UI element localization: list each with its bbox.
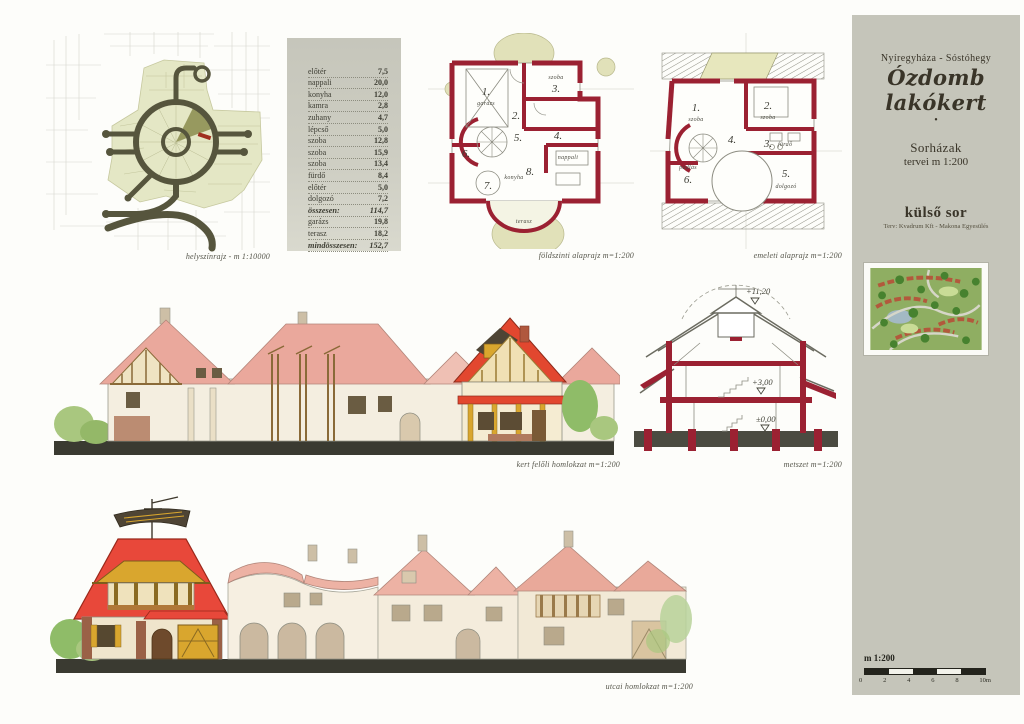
section-drawing: +11,20 +3,00 ±0,00 bbox=[630, 281, 842, 460]
table-row: kamra2,8 bbox=[308, 101, 388, 113]
table-row: terasz18,2 bbox=[308, 228, 388, 240]
row-value: 2,8 bbox=[378, 101, 388, 111]
garden-elevation-caption: kert felőli homlokzat m=1:200 bbox=[48, 460, 620, 469]
row-value: 20,0 bbox=[374, 78, 388, 88]
pale-house-3 bbox=[374, 549, 522, 659]
table-row-subtotal: összesen:114,7 bbox=[308, 205, 388, 217]
row-label: összesen: bbox=[308, 206, 340, 216]
row-label: dolgozó bbox=[308, 194, 334, 204]
row-value: 18,2 bbox=[374, 229, 388, 239]
void-arc bbox=[712, 151, 772, 211]
room-name: szoba bbox=[548, 75, 563, 81]
room-name: dolgozó bbox=[775, 184, 796, 190]
section-caption: metszet m=1:200 bbox=[630, 460, 842, 469]
room-number: 7. bbox=[484, 180, 492, 192]
scale-tick: 10m bbox=[979, 677, 991, 684]
room-number: 6. bbox=[462, 148, 470, 160]
level-label: ±0,00 bbox=[756, 414, 776, 424]
room-number: 3. bbox=[763, 138, 772, 150]
row-label: zuhany bbox=[308, 113, 331, 123]
row-label: fürdő bbox=[308, 171, 325, 181]
row-value: 5,0 bbox=[378, 183, 388, 193]
scale-tick: 2 bbox=[883, 677, 886, 684]
table-row: zuhany4,7 bbox=[308, 112, 388, 124]
room-name: szoba bbox=[760, 115, 775, 121]
scale-tick: 4 bbox=[907, 677, 910, 684]
room-number: 1. bbox=[482, 86, 490, 98]
row-label: szoba bbox=[308, 148, 326, 158]
ground-floor-plan: 1. garázs 2. szoba 3. 4. 5. 6. 7. konyha… bbox=[428, 33, 634, 249]
terrace-label: terasz bbox=[516, 219, 532, 225]
pale-house-2 bbox=[228, 562, 378, 659]
row-type-label: külső sor bbox=[852, 205, 1020, 222]
room-number: 4. bbox=[554, 130, 562, 142]
scale-segment bbox=[913, 669, 937, 674]
shutter-right bbox=[115, 625, 121, 647]
row-label: nappali bbox=[308, 78, 332, 88]
scale-segment bbox=[865, 669, 889, 674]
site-plan-caption: helyszínrajz - m 1:10000 bbox=[46, 252, 270, 261]
row-label: előtér bbox=[308, 67, 326, 77]
upper-floor-drawing: 1. szoba 2. szoba 3. fürdő 4. 5. dolgozó… bbox=[650, 33, 842, 249]
row-value: 7,5 bbox=[378, 67, 388, 77]
room-number: 2. bbox=[512, 110, 520, 122]
ground-strip bbox=[56, 659, 686, 673]
street-elevation-drawing bbox=[48, 487, 693, 678]
level-label: +3,00 bbox=[752, 377, 773, 387]
scale-tick: 8 bbox=[955, 677, 958, 684]
left-bushes bbox=[54, 406, 112, 444]
scale-segment bbox=[961, 669, 985, 674]
row-label: konyha bbox=[308, 90, 332, 100]
table-row: szoba12,8 bbox=[308, 136, 388, 148]
roof-plane bbox=[700, 53, 778, 79]
section-svg: +11,20 +3,00 ±0,00 bbox=[630, 281, 842, 460]
chimneys bbox=[308, 531, 573, 563]
row-value: 114,7 bbox=[370, 206, 388, 216]
project-title: Ózdomb lakókert bbox=[852, 65, 1020, 115]
balcony-rail bbox=[108, 605, 194, 610]
row-value: 13,4 bbox=[374, 159, 388, 169]
table-row: szoba15,9 bbox=[308, 147, 388, 159]
row-label: lépcső bbox=[308, 125, 328, 135]
table-row: dolgozó7,2 bbox=[308, 194, 388, 206]
row-value: 19,8 bbox=[374, 217, 388, 227]
room-number: 8. bbox=[526, 166, 534, 178]
interior-details bbox=[674, 343, 798, 431]
room-number: 3. bbox=[551, 83, 560, 95]
room-name: szoba bbox=[688, 117, 703, 123]
street-elevation bbox=[48, 487, 693, 678]
site-plan bbox=[46, 30, 270, 252]
table-row: szoba13,4 bbox=[308, 159, 388, 171]
area-table: előtér7,5 nappali20,0 konyha12,0 kamra2,… bbox=[287, 38, 401, 251]
highlight-house bbox=[74, 497, 230, 659]
ground-plan-caption: földszinti alaprajz m=1:200 bbox=[428, 251, 634, 260]
highlight-house bbox=[454, 318, 566, 441]
credits: Terv: Kvadrum Kft - Makona Egyesülés bbox=[852, 223, 1020, 230]
room-name: padlás bbox=[678, 165, 697, 171]
project-location: Nyíregyháza - Sóstóhegy bbox=[852, 53, 1020, 64]
row-value: 8,4 bbox=[378, 171, 388, 181]
row-label: szoba bbox=[308, 159, 326, 169]
row-label: előtér bbox=[308, 183, 326, 193]
shutter-left bbox=[91, 625, 97, 647]
row-label: kamra bbox=[308, 101, 328, 111]
row-label: szoba bbox=[308, 136, 326, 146]
garden-elevation bbox=[48, 284, 620, 458]
level-label: +11,20 bbox=[746, 286, 771, 296]
table-row: nappali20,0 bbox=[308, 78, 388, 90]
row-value: 152,7 bbox=[369, 241, 388, 251]
aerial-rendering-svg bbox=[869, 268, 983, 350]
roof-tower bbox=[712, 297, 760, 337]
row-value: 5,0 bbox=[378, 125, 388, 135]
room-number: 4. bbox=[728, 134, 736, 146]
aerial-rendering-thumbnail bbox=[864, 263, 988, 355]
room-name: garázs bbox=[477, 101, 495, 107]
row-value: 12,0 bbox=[374, 90, 388, 100]
row-label: mindösszesen: bbox=[308, 241, 357, 251]
table-row: garázs19,8 bbox=[308, 217, 388, 229]
ground-floor-drawing: 1. garázs 2. szoba 3. 4. 5. 6. 7. konyha… bbox=[428, 33, 634, 249]
presentation-board: helyszínrajz - m 1:10000 előtér7,5 nappa… bbox=[0, 0, 1024, 724]
scale-tick: 6 bbox=[931, 677, 934, 684]
window bbox=[96, 625, 116, 647]
site-plan-drawing bbox=[46, 30, 270, 252]
room-number: 5. bbox=[514, 132, 522, 144]
separator-dot: • bbox=[852, 115, 1020, 126]
row-label: terasz bbox=[308, 229, 327, 239]
title-block: Nyíregyháza - Sóstóhegy Ózdomb lakókert … bbox=[852, 15, 1020, 695]
scale-bar: m 1:200 0 2 4 6 8 10m bbox=[862, 653, 1002, 684]
table-row-total: mindösszesen:152,7 bbox=[308, 240, 388, 252]
garden-elevation-drawing bbox=[48, 284, 620, 458]
table-row: konyha12,0 bbox=[308, 89, 388, 101]
row-value: 4,7 bbox=[378, 113, 388, 123]
room-name: fürdő bbox=[778, 141, 793, 148]
porch-roof bbox=[144, 611, 230, 619]
table-row: előtér7,5 bbox=[308, 66, 388, 78]
room-name: konyha bbox=[504, 175, 523, 181]
upper-floor-plan: 1. szoba 2. szoba 3. fürdő 4. 5. dolgozó… bbox=[650, 33, 842, 249]
table-row: fürdő8,4 bbox=[308, 170, 388, 182]
scale-bar-segments bbox=[864, 668, 986, 675]
row-label: garázs bbox=[308, 217, 328, 227]
row-value: 7,2 bbox=[378, 194, 388, 204]
scale-label: m 1:200 bbox=[864, 653, 1002, 663]
scale-segment bbox=[937, 669, 961, 674]
upper-plan-caption: emeleti alaprajz m=1:200 bbox=[650, 251, 842, 260]
table-row: lépcső5,0 bbox=[308, 124, 388, 136]
scale-ticks: 0 2 4 6 8 10m bbox=[859, 677, 991, 684]
scale-segment bbox=[889, 669, 913, 674]
table-row: előtér5,0 bbox=[308, 182, 388, 194]
series-label: Sorházak bbox=[852, 140, 1020, 156]
room-number: 5. bbox=[782, 168, 790, 180]
row-value: 12,8 bbox=[374, 136, 388, 146]
room-number: 6. bbox=[684, 174, 692, 186]
room-number: 2. bbox=[764, 100, 772, 112]
ground-strip bbox=[54, 441, 614, 455]
room-name: nappali bbox=[558, 155, 578, 161]
row-value: 15,9 bbox=[374, 148, 388, 158]
street-elevation-caption: utcai homlokzat m=1:200 bbox=[48, 682, 693, 691]
entry-arch bbox=[152, 629, 172, 659]
series-scale: tervei m 1:200 bbox=[852, 156, 1020, 168]
area-table-rows: előtér7,5 nappali20,0 konyha12,0 kamra2,… bbox=[308, 66, 388, 252]
room-number: 1. bbox=[692, 102, 700, 114]
scale-tick: 0 bbox=[859, 677, 862, 684]
